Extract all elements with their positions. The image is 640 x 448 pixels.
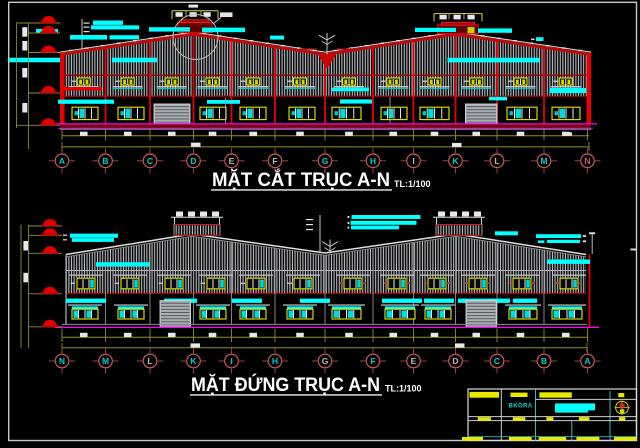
- svg-text:D: D: [190, 156, 196, 166]
- svg-text:I: I: [230, 356, 232, 366]
- svg-text:I: I: [412, 156, 414, 166]
- svg-text:E: E: [229, 156, 235, 166]
- svg-text:M: M: [540, 156, 547, 166]
- svg-text:MẶT CẮT TRỤC A-N: MẶT CẮT TRỤC A-N: [212, 169, 390, 191]
- svg-text:TL:1/100: TL:1/100: [394, 179, 431, 189]
- svg-text:BKORA: BKORA: [509, 404, 533, 410]
- svg-text:N: N: [584, 156, 590, 166]
- svg-text:A: A: [584, 356, 590, 366]
- svg-text:MẶT ĐỨNG TRỤC A-N: MẶT ĐỨNG TRỤC A-N: [191, 374, 380, 396]
- svg-text:K: K: [190, 356, 197, 366]
- svg-text:C: C: [147, 156, 153, 166]
- svg-text:B: B: [541, 356, 547, 366]
- svg-text:E: E: [411, 356, 417, 366]
- svg-text:TL:1/100: TL:1/100: [385, 384, 422, 394]
- svg-text:L: L: [147, 356, 152, 366]
- svg-text:F: F: [272, 156, 277, 166]
- svg-text:K: K: [452, 156, 459, 166]
- svg-text:H: H: [370, 156, 376, 166]
- svg-text:H: H: [272, 356, 278, 366]
- svg-text:D: D: [452, 356, 458, 366]
- svg-text:A: A: [59, 156, 65, 166]
- svg-text:L: L: [494, 156, 499, 166]
- svg-text:G: G: [322, 356, 329, 366]
- svg-text:N: N: [59, 356, 65, 366]
- svg-text:F: F: [370, 356, 375, 366]
- svg-text:B: B: [102, 156, 108, 166]
- svg-text:G: G: [322, 156, 329, 166]
- svg-text:M: M: [102, 356, 109, 366]
- svg-text:C: C: [494, 356, 500, 366]
